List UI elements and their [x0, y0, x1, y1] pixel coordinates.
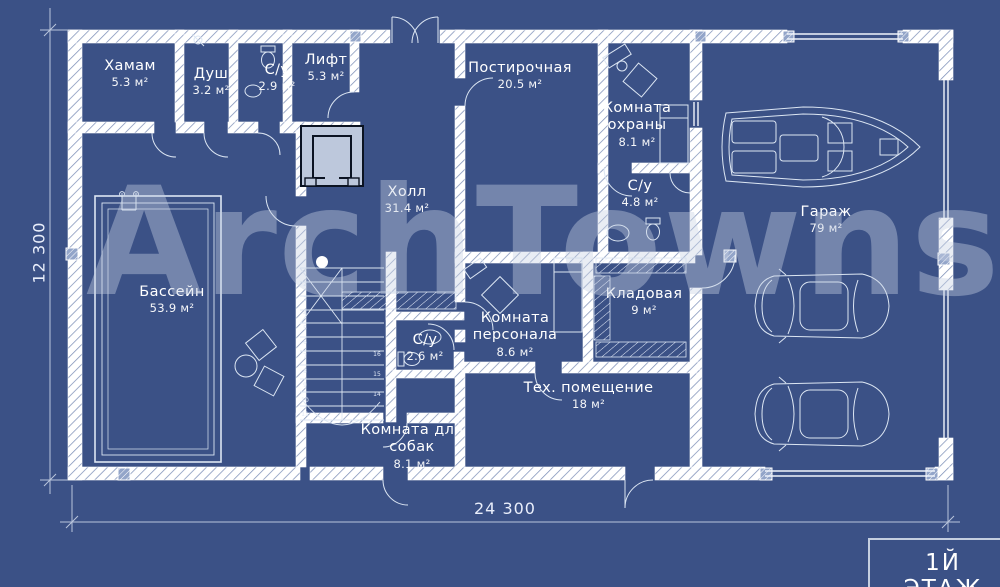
toilet-icon	[398, 352, 420, 366]
toilet-icon	[261, 46, 275, 68]
storage-shelves-hatch	[594, 258, 686, 357]
pool-ladder-icon	[120, 192, 139, 210]
floor-title: 1Й ЭТАЖ	[884, 550, 1000, 587]
toilet-icon	[646, 218, 660, 240]
security-room-furniture	[603, 44, 688, 163]
pool-seating-icons	[235, 330, 284, 396]
sink-icon	[419, 330, 441, 344]
walls-layer	[68, 30, 953, 480]
lift-shaft-icon	[301, 126, 363, 186]
stairs-icon	[300, 256, 384, 425]
boat-icon	[722, 107, 920, 187]
shower-icon	[670, 173, 690, 193]
sink-icon	[245, 85, 261, 97]
pool-icon	[95, 192, 221, 462]
dimension-width-label: 24 300	[435, 499, 575, 518]
car-icon	[755, 269, 889, 343]
sink-icon	[607, 225, 629, 241]
wardrobe-hatch	[342, 292, 456, 309]
car-icon	[755, 377, 889, 451]
floor-title-box: 1Й ЭТАЖ	[868, 538, 1000, 587]
staff-room-furniture	[464, 258, 582, 332]
dimension-height-label: 12 300	[30, 198, 49, 308]
blueprint-floor-plan: Хамам5.3 м² Душ3.2 м² С/у2.9 м² Лифт5.3 …	[0, 0, 1000, 587]
